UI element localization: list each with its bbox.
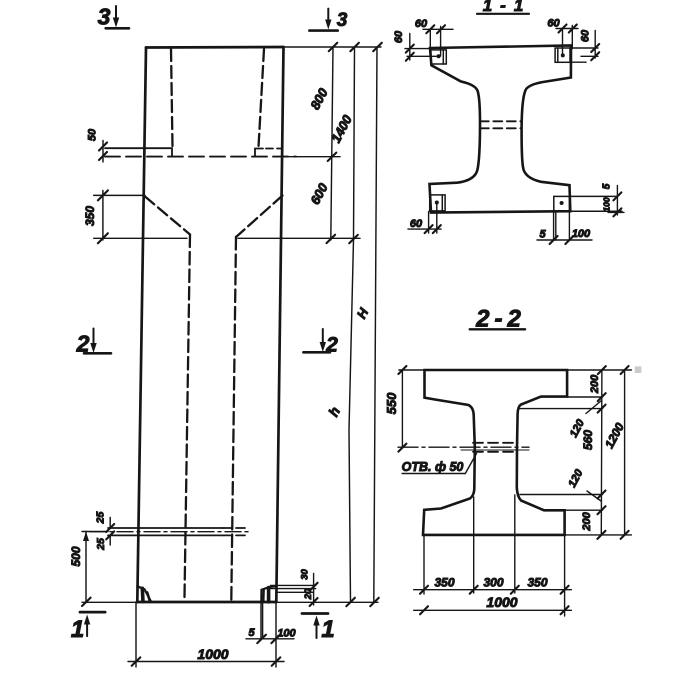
svg-text:100: 100 [602,197,612,211]
svg-text:350: 350 [434,576,454,590]
svg-text:5: 5 [248,627,255,639]
svg-text:25: 25 [95,538,107,551]
svg-text:1: 1 [71,616,84,643]
svg-text:100: 100 [277,628,296,640]
svg-text:25: 25 [95,512,107,525]
svg-text:550: 550 [384,392,399,414]
svg-text:2-2: 2-2 [475,306,526,333]
svg-text:5: 5 [602,183,613,189]
svg-text:60: 60 [547,18,560,30]
svg-text:350: 350 [527,576,547,590]
svg-text:50: 50 [87,128,99,141]
svg-text:300: 300 [483,576,503,590]
svg-text:5: 5 [539,229,546,241]
svg-text:1000: 1000 [486,594,517,610]
svg-text:500: 500 [69,546,83,566]
svg-text:100: 100 [572,228,591,240]
svg-text:200: 200 [589,374,601,394]
svg-text:3: 3 [98,4,111,30]
svg-text:60: 60 [393,30,405,43]
svg-text:200: 200 [581,511,593,531]
svg-text:30: 30 [300,569,311,580]
svg-text:560: 560 [581,430,595,450]
svg-text:2: 2 [325,334,338,357]
svg-text:1-1: 1-1 [483,0,532,15]
svg-text:60: 60 [580,29,592,42]
svg-text:2: 2 [76,331,90,357]
svg-text:350: 350 [83,206,97,226]
svg-text:1: 1 [321,616,334,643]
svg-text:60: 60 [415,18,428,30]
svg-text:60: 60 [410,218,423,230]
svg-text:ОТВ. ф 50: ОТВ. ф 50 [402,460,464,474]
svg-text:20: 20 [303,588,314,600]
svg-text:3: 3 [337,10,348,31]
svg-text:1000: 1000 [197,646,228,662]
